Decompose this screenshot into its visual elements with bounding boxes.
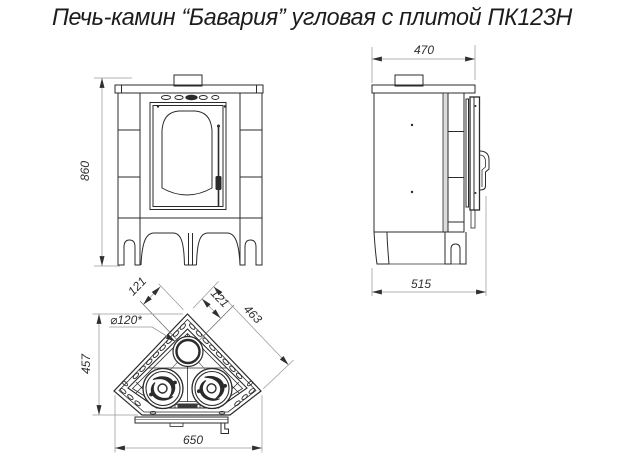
dim-label-121-right: 121 xyxy=(208,286,232,310)
dim-label-470: 470 xyxy=(414,43,434,57)
tile-column-side xyxy=(448,93,464,232)
dimension-515: 515 xyxy=(372,196,486,296)
plan-handle xyxy=(221,423,229,434)
dim-label-515: 515 xyxy=(411,277,431,291)
plan-front-bar xyxy=(135,417,229,434)
flue-stub-side xyxy=(395,75,423,86)
dimension-121-left: 121 xyxy=(125,274,183,310)
dimension-121-right: 121 xyxy=(202,286,232,318)
brand-plate xyxy=(178,404,198,409)
burner-plate-left xyxy=(143,369,183,409)
technical-drawing: 860 xyxy=(0,0,624,460)
front-edge-band xyxy=(443,93,448,232)
flue-stub-front xyxy=(174,75,202,86)
legs-side xyxy=(374,210,475,264)
side-view xyxy=(372,75,489,264)
drawing-page: Печь-камин “Бавария” угловая с плитой ПК… xyxy=(0,0,624,460)
dimension-860: 860 xyxy=(78,78,132,266)
air-vents xyxy=(161,95,219,100)
burner-plate-right xyxy=(192,369,232,409)
door-latch xyxy=(216,176,222,190)
dim-label-650: 650 xyxy=(183,433,203,447)
dim-label-flue-diameter: ⌀120* xyxy=(110,313,142,327)
legs-front xyxy=(118,218,262,265)
front-view xyxy=(115,75,263,265)
dim-label-463: 463 xyxy=(241,302,265,326)
dim-label-457: 457 xyxy=(79,353,93,374)
dim-label-121-left: 121 xyxy=(125,274,149,298)
stove-body-side xyxy=(374,93,445,232)
door-glass xyxy=(162,111,212,195)
firebox-door xyxy=(150,103,226,210)
dim-label-860: 860 xyxy=(78,161,92,181)
